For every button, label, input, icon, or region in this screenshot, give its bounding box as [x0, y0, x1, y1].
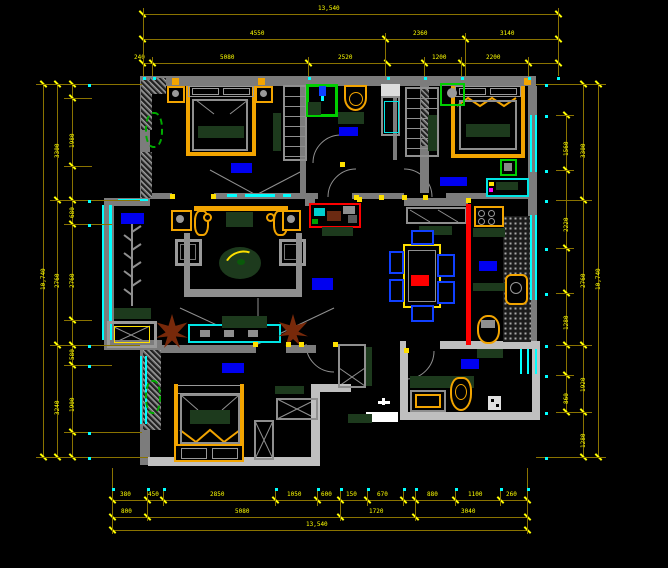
axis-dot	[545, 457, 548, 460]
extension-line	[558, 8, 559, 76]
extension-line	[556, 412, 592, 413]
dimension-label: 580	[70, 336, 77, 360]
dimension-label: 380	[120, 492, 144, 499]
axis-dot	[455, 488, 458, 491]
extension-line	[556, 248, 574, 249]
dimension-label: 3140	[500, 31, 524, 38]
dimension-label: 2760	[55, 264, 62, 288]
dimension-label: 670	[377, 492, 401, 499]
extension-line	[556, 170, 574, 171]
extension-line	[275, 490, 276, 506]
dimension-label: 2760	[581, 264, 588, 288]
dimension-label: 2360	[413, 31, 437, 38]
axis-dot	[424, 77, 427, 80]
door-hinge	[299, 342, 304, 347]
dimension-label: 10,740	[596, 266, 603, 290]
extension-line	[415, 490, 416, 521]
extension-line	[528, 57, 529, 76]
axis-dot	[308, 77, 311, 80]
extension-line	[556, 200, 592, 201]
annotation-layer: 13,5404550236031402405080252012002200380…	[0, 0, 668, 568]
label-bedroom-3	[222, 363, 244, 373]
dimension-label: 1280	[564, 306, 571, 330]
label-kitchen	[479, 261, 497, 271]
axis-dot	[153, 77, 156, 80]
door-hinge	[333, 342, 338, 347]
extension-line	[163, 490, 164, 506]
axis-dot	[403, 488, 406, 491]
dimension-label: 3300	[581, 134, 588, 158]
dimension-label: 13,540	[318, 6, 342, 13]
label-balcony	[121, 213, 144, 224]
extension-line	[147, 490, 148, 521]
dimension-line	[112, 530, 527, 531]
axis-dot	[88, 365, 91, 368]
extension-line	[367, 490, 368, 506]
dimension-label: 1900	[70, 388, 77, 412]
door-hinge	[340, 162, 345, 167]
dimension-label: 10,740	[41, 266, 48, 290]
extension-line	[340, 490, 341, 521]
extension-line	[424, 57, 425, 76]
axis-dot	[163, 488, 166, 491]
axis-dot	[415, 488, 418, 491]
floorplan-canvas[interactable]: 13,5404550236031402405080252012002200380…	[0, 0, 668, 568]
extension-line	[403, 490, 404, 506]
dimension-label: 3300	[55, 134, 62, 158]
axis-dot	[317, 488, 320, 491]
extension-line	[455, 490, 456, 506]
axis-dot	[461, 77, 464, 80]
dimension-label: 13,540	[306, 522, 330, 529]
door-hinge	[211, 194, 216, 199]
door-hinge	[286, 342, 291, 347]
door-hinge	[357, 197, 362, 202]
door-hinge	[404, 348, 409, 353]
door-hinge	[170, 194, 175, 199]
axis-dot	[545, 115, 548, 118]
axis-dot	[88, 457, 91, 460]
extension-line	[50, 345, 140, 346]
axis-dot	[528, 77, 531, 80]
door-hinge	[379, 195, 384, 200]
extension-line	[461, 57, 462, 76]
dimension-label: 4550	[250, 31, 274, 38]
axis-dot	[340, 488, 343, 491]
door-hinge	[253, 342, 258, 347]
dimension-label: 2220	[564, 208, 571, 232]
axis-dot	[88, 224, 91, 227]
axis-dot	[545, 84, 548, 87]
dimension-label: 450	[148, 492, 172, 499]
dimension-label: 800	[121, 509, 145, 516]
dimension-label: 1050	[287, 492, 311, 499]
extension-line	[527, 468, 528, 534]
dimension-label: 3240	[55, 391, 62, 415]
door-hinge	[423, 195, 428, 200]
extension-line	[143, 8, 144, 76]
extension-line	[385, 33, 386, 76]
dimension-label: 1980	[70, 124, 77, 148]
dimension-line	[112, 517, 527, 518]
axis-dot	[500, 488, 503, 491]
axis-dot	[143, 77, 146, 80]
extension-line	[500, 490, 501, 506]
dimension-label: 3040	[461, 509, 485, 516]
dimension-label: 5080	[235, 509, 259, 516]
label-bedroom-2	[440, 177, 467, 186]
dimension-line	[142, 39, 558, 40]
dimension-label: 2520	[338, 55, 362, 62]
door-hinge	[402, 195, 407, 200]
dimension-label: 1200	[432, 55, 456, 62]
dimension-label: 2850	[210, 492, 234, 499]
axis-dot	[545, 293, 548, 296]
axis-dot	[88, 345, 91, 348]
axis-dot	[367, 488, 370, 491]
extension-line	[64, 320, 92, 321]
label-bathroom-1	[339, 127, 358, 136]
dimension-label: 860	[564, 380, 571, 404]
axis-dot	[112, 488, 115, 491]
label-living-room	[312, 278, 333, 290]
extension-line	[64, 432, 142, 433]
extension-line	[64, 98, 92, 99]
extension-line	[465, 33, 466, 76]
extension-line	[50, 200, 140, 201]
dimension-line	[566, 115, 567, 412]
axis-dot	[545, 170, 548, 173]
axis-dot	[545, 200, 548, 203]
extension-line	[64, 166, 92, 167]
label-bedroom-1	[231, 163, 252, 173]
dimension-line	[142, 14, 558, 15]
label-bathroom-2	[461, 359, 479, 369]
axis-dot	[545, 345, 548, 348]
extension-line	[556, 345, 592, 346]
axis-dot	[545, 412, 548, 415]
axis-dot	[88, 432, 91, 435]
dimension-label: 1560	[564, 132, 571, 156]
dimension-label: 2200	[486, 55, 510, 62]
dimension-label: 1100	[468, 492, 492, 499]
door-hinge	[466, 198, 471, 203]
axis-dot	[387, 77, 390, 80]
axis-dot	[275, 488, 278, 491]
dimension-label: 600	[321, 492, 345, 499]
extension-line	[556, 375, 574, 376]
extension-line	[317, 490, 318, 506]
extension-line	[308, 57, 309, 76]
dimension-label: 2760	[70, 264, 77, 288]
extension-line	[556, 293, 574, 294]
axis-dot	[147, 488, 150, 491]
dimension-label: 5080	[220, 55, 244, 62]
dimension-line	[142, 63, 558, 64]
dimension-label: 240	[134, 55, 158, 62]
axis-dot	[88, 84, 91, 87]
dimension-label: 1920	[581, 368, 588, 392]
axis-dot	[545, 375, 548, 378]
axis-dot	[88, 200, 91, 203]
extension-line	[112, 468, 113, 534]
extension-line	[152, 57, 153, 76]
dimension-label: 1280	[581, 424, 588, 448]
dimension-label: 880	[427, 492, 451, 499]
axis-dot	[557, 77, 560, 80]
dimension-label: 680	[70, 194, 77, 218]
axis-dot	[545, 248, 548, 251]
axis-dot	[527, 488, 530, 491]
extension-line	[556, 115, 574, 116]
dimension-label: 1720	[369, 509, 393, 516]
extension-line	[36, 457, 148, 458]
